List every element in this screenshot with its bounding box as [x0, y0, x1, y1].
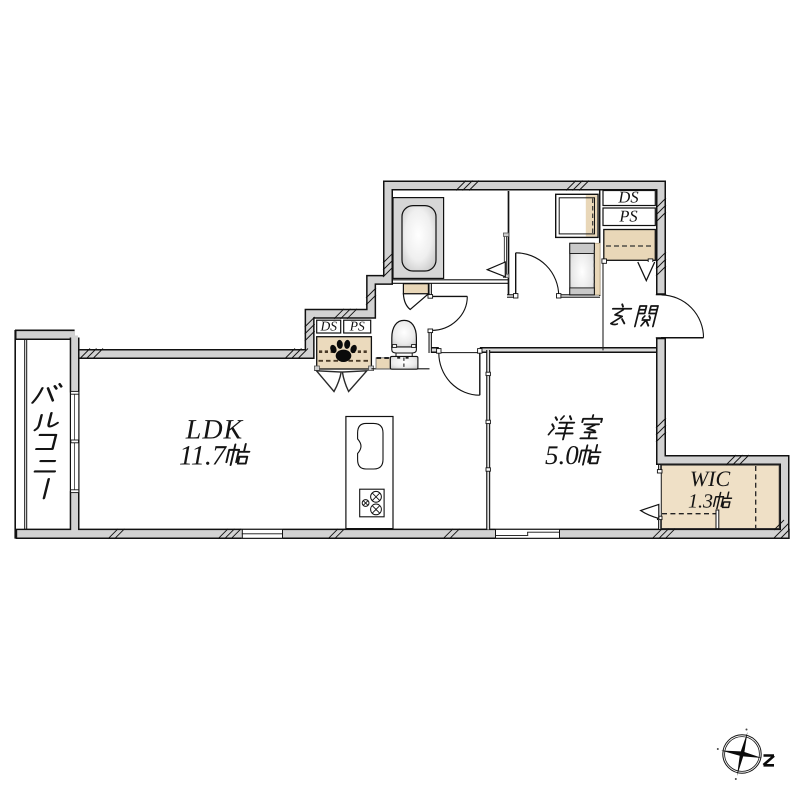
svg-text:1.3: 1.3: [688, 491, 713, 513]
svg-text:PS: PS: [618, 206, 637, 225]
svg-text:DS: DS: [617, 187, 638, 206]
svg-text:5.0: 5.0: [545, 440, 579, 470]
svg-text:DS: DS: [320, 318, 338, 333]
svg-text:WIC: WIC: [690, 466, 731, 491]
svg-text:11.7: 11.7: [179, 441, 227, 472]
svg-text:PS: PS: [349, 318, 365, 333]
